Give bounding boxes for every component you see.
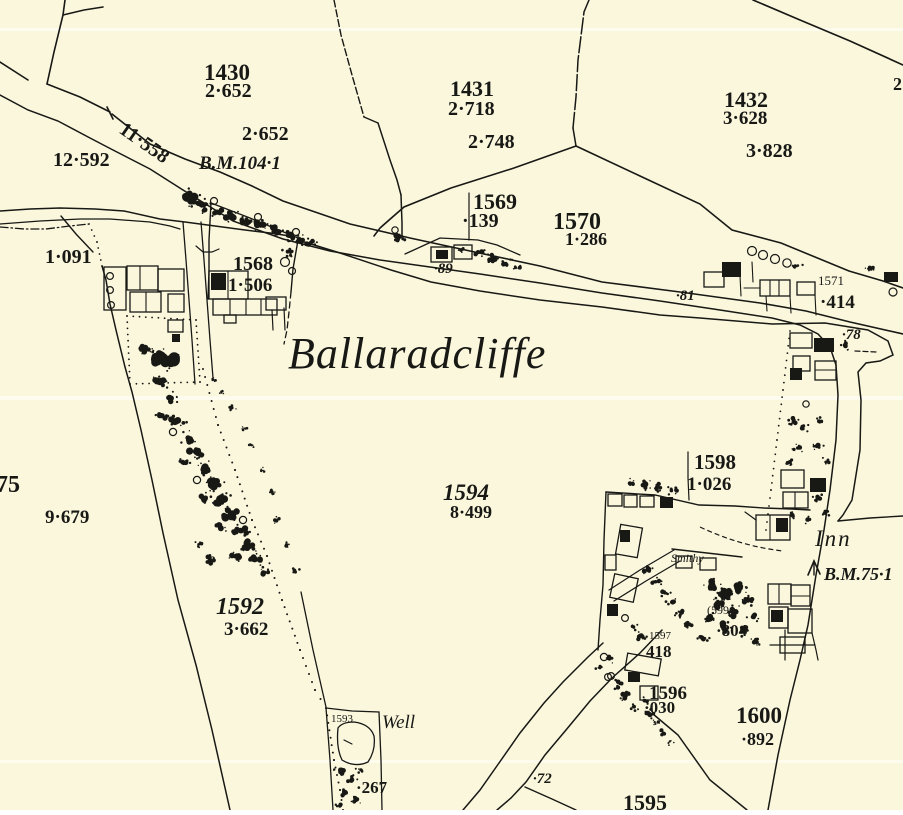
svg-text:·78: ·78 <box>842 327 861 343</box>
svg-text:·72: ·72 <box>533 771 552 787</box>
svg-text:·892: ·892 <box>741 729 774 749</box>
svg-text:75: 75 <box>0 472 20 498</box>
svg-text:9·679: 9·679 <box>45 507 89 528</box>
svg-text:2·652: 2·652 <box>205 80 252 102</box>
svg-text:Smithy: Smithy <box>671 551 704 565</box>
svg-text:1·286: 1·286 <box>565 229 607 249</box>
svg-text:1593: 1593 <box>331 713 354 725</box>
svg-text:12·592: 12·592 <box>53 149 110 171</box>
svg-text:8·499: 8·499 <box>450 502 492 522</box>
svg-text:3·828: 3·828 <box>746 140 793 162</box>
svg-text:·030: ·030 <box>644 698 675 717</box>
svg-text:·81: ·81 <box>676 288 695 304</box>
svg-text:B.M.104·1: B.M.104·1 <box>198 153 281 174</box>
svg-text:1600: 1600 <box>736 703 782 728</box>
svg-text:1·026: 1·026 <box>687 474 731 495</box>
svg-text:·414: ·414 <box>820 292 855 313</box>
svg-text:1·506: 1·506 <box>228 275 272 296</box>
svg-text:2: 2 <box>893 74 902 94</box>
svg-text:1568: 1568 <box>233 253 273 275</box>
svg-text:Ballaradcliffe: Ballaradcliffe <box>288 329 546 378</box>
svg-text:B.M.75·1: B.M.75·1 <box>823 564 893 584</box>
svg-text:1592: 1592 <box>216 594 264 620</box>
svg-text:1597: 1597 <box>649 630 672 642</box>
svg-text:Well: Well <box>382 712 415 733</box>
svg-text:1571: 1571 <box>818 273 844 288</box>
svg-text:2·718: 2·718 <box>448 98 495 120</box>
svg-text:2·652: 2·652 <box>242 123 289 145</box>
svg-text:·89: ·89 <box>434 261 453 277</box>
svg-text:Inn: Inn <box>814 526 852 551</box>
svg-text:(599: (599 <box>707 603 729 617</box>
svg-text:1598: 1598 <box>694 450 736 474</box>
svg-text:1·091: 1·091 <box>45 246 92 268</box>
svg-text:·804: ·804 <box>716 621 748 640</box>
svg-text:1595: 1595 <box>623 790 667 810</box>
svg-text:3·628: 3·628 <box>723 108 767 129</box>
svg-text:2·748: 2·748 <box>468 131 515 153</box>
svg-text:·139: ·139 <box>462 210 499 232</box>
svg-text:·267: ·267 <box>356 778 388 797</box>
svg-text:3·662: 3·662 <box>224 619 268 640</box>
svg-text:418: 418 <box>646 642 672 661</box>
